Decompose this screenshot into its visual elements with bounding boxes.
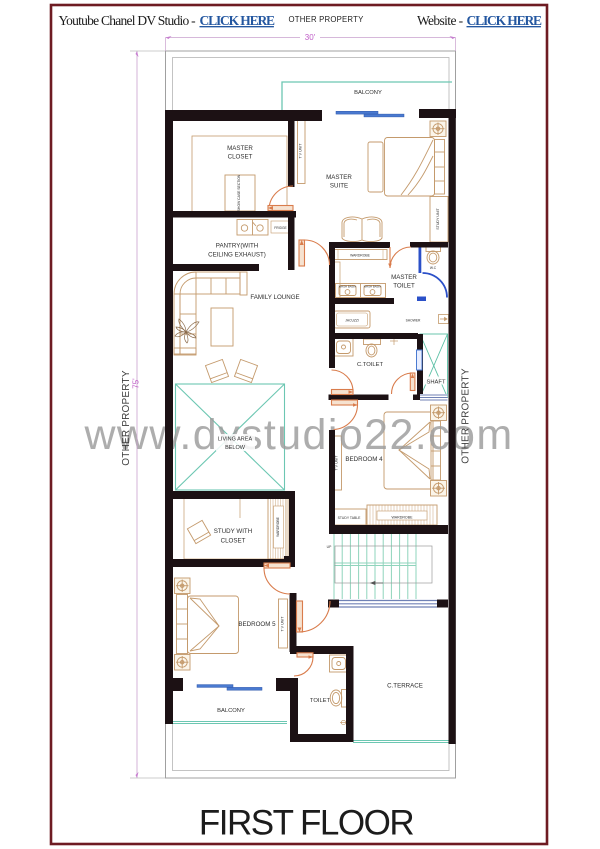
svg-text:WARDROBE: WARDROBE xyxy=(350,253,371,257)
svg-text:STUDY TABLE: STUDY TABLE xyxy=(338,516,362,520)
svg-text:WASH BASIN: WASH BASIN xyxy=(364,285,381,289)
svg-text:CLOSET: CLOSET xyxy=(228,154,253,161)
svg-text:JACUZZI: JACUZZI xyxy=(345,319,359,323)
svg-text:BEDROOM 5: BEDROOM 5 xyxy=(238,621,276,628)
svg-text:75': 75' xyxy=(132,378,141,389)
svg-text:FIRST FLOOR: FIRST FLOOR xyxy=(199,804,413,843)
svg-text:T V UNIT: T V UNIT xyxy=(335,455,339,471)
svg-text:BALCONY: BALCONY xyxy=(217,708,245,714)
svg-text:CEILING EXHAUST): CEILING EXHAUST) xyxy=(208,252,266,259)
svg-text:OTHER PROPERTY: OTHER PROPERTY xyxy=(121,370,132,466)
svg-text:STUDY UNIT: STUDY UNIT xyxy=(436,207,440,229)
svg-text:30': 30' xyxy=(305,33,316,42)
svg-text:SHOWER: SHOWER xyxy=(406,319,421,323)
svg-text:STUDY WITH: STUDY WITH xyxy=(214,528,252,535)
svg-text:OTHER PROPERTY: OTHER PROPERTY xyxy=(461,368,472,464)
svg-text:T V UNIT: T V UNIT xyxy=(299,143,303,159)
svg-text:BEDROOM 4: BEDROOM 4 xyxy=(345,456,383,463)
svg-text:CLOSET: CLOSET xyxy=(221,538,246,545)
svg-text:MASTER: MASTER xyxy=(391,274,417,281)
svg-text:CLICK HERE: CLICK HERE xyxy=(467,13,543,28)
svg-text:UP: UP xyxy=(327,545,332,549)
svg-text:OTHER PROPERTY: OTHER PROPERTY xyxy=(288,15,364,24)
svg-text:TOILET: TOILET xyxy=(393,283,415,290)
svg-text:Youtube Chanel DV Studio -: Youtube Chanel DV Studio - xyxy=(59,13,197,28)
svg-text:LIVING AREA: LIVING AREA xyxy=(218,437,253,443)
svg-text:Website -: Website - xyxy=(417,13,464,28)
svg-text:TOILET: TOILET xyxy=(310,698,331,704)
svg-text:C.TOILET: C.TOILET xyxy=(357,362,383,368)
svg-text:WASH BASIN: WASH BASIN xyxy=(339,285,356,289)
svg-text:FAMILY LOUNGE: FAMILY LOUNGE xyxy=(250,294,299,301)
svg-text:BELOW: BELOW xyxy=(225,445,246,451)
svg-text:WARDROBE: WARDROBE xyxy=(391,516,413,520)
svg-text:PANTRY(WITH: PANTRY(WITH xyxy=(216,243,258,250)
svg-text:FRIDGE: FRIDGE xyxy=(274,226,287,230)
svg-text:MASTER: MASTER xyxy=(326,174,352,181)
svg-text:WARDROBE: WARDROBE xyxy=(276,516,280,537)
svg-text:CLICK HERE: CLICK HERE xyxy=(200,13,276,28)
svg-text:C.TERRACE: C.TERRACE xyxy=(387,683,423,690)
svg-text:T V UNIT: T V UNIT xyxy=(280,616,284,632)
svg-text:SUITE: SUITE xyxy=(330,183,348,190)
svg-text:W.C: W.C xyxy=(430,266,437,270)
svg-text:SHAFT: SHAFT xyxy=(426,380,445,386)
svg-text:BALCONY: BALCONY xyxy=(354,90,382,96)
svg-text:MASTER: MASTER xyxy=(227,145,253,152)
svg-text:SHOW CASE SECTION: SHOW CASE SECTION xyxy=(237,174,241,211)
